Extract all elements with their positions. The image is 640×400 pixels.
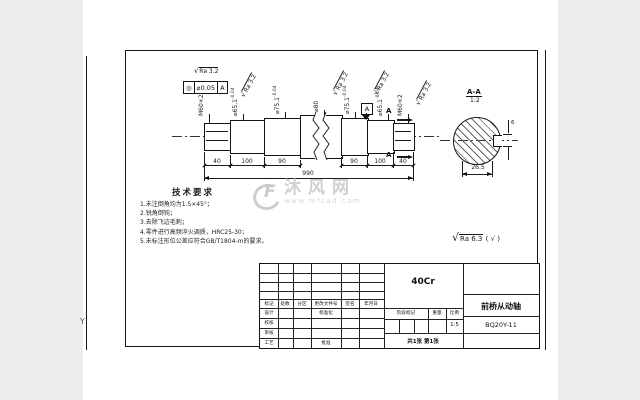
tb-col-genggai: 更改文件号 <box>315 301 338 307</box>
tb-divider <box>463 333 539 334</box>
drawing-outer-border-left <box>86 56 87 350</box>
dim-40-right: 40 <box>399 158 407 165</box>
dimension-line <box>508 147 509 160</box>
extension-line <box>355 112 356 118</box>
extension-line <box>492 161 493 177</box>
roughness-mark-top-left: √Ra 3.2 <box>194 66 218 75</box>
tb-standardization: 标准化 <box>319 310 333 316</box>
dim-overall-990: 990 <box>302 170 313 177</box>
tb-divider <box>463 294 539 295</box>
dim-arrow-icon <box>204 176 209 180</box>
tech-requirement-item: 5.未标注形位公差应符合GB/T1804-m的要求。 <box>140 237 300 246</box>
tb-scale-value: 1:5 <box>450 322 459 328</box>
break-line <box>312 112 330 160</box>
cad-drawing-page: Y M60×2 ⌀65.1-0.04 ⌀75.1-0.04 ⌀80 ⌀75.1-… <box>0 0 640 400</box>
roughness-value: Ra 3.2 <box>199 67 218 75</box>
tb-part-name: 前桥从动轴 <box>481 301 521 312</box>
tb-stage-mark: 阶段标记 <box>397 310 415 316</box>
extension-line <box>324 110 325 115</box>
keyway-line <box>206 140 228 141</box>
section-arrow-icon <box>408 118 413 122</box>
dimension-line <box>204 165 300 166</box>
watermark-site-url: www.mfcad.com <box>284 197 361 205</box>
dim-40-left: 40 <box>213 158 221 165</box>
tb-divider <box>260 282 384 283</box>
keyway-line <box>206 131 228 132</box>
dim-label-d80: ⌀80 <box>311 101 318 112</box>
datum-triangle-icon <box>362 115 370 120</box>
shaft-segment-d75-right <box>341 118 369 156</box>
tb-approve: 批准 <box>321 340 330 346</box>
section-view-scale: 1:2 <box>470 97 480 104</box>
tb-divider <box>384 333 463 334</box>
shaft-segment-thread-left <box>204 123 232 151</box>
datum-flag: A <box>361 103 373 115</box>
tb-col-chushu: 处数 <box>280 301 289 307</box>
shaft-segment-thread-right <box>393 123 415 151</box>
general-roughness-other: ( √ ) <box>486 235 500 243</box>
tb-divider <box>260 273 384 274</box>
dimension-line <box>508 120 509 133</box>
tb-divider <box>463 264 464 348</box>
tb-divider <box>428 308 429 333</box>
tb-divider <box>384 308 463 309</box>
concentricity-icon: ◎ <box>184 82 195 93</box>
tb-drawing-number: BQ20Y-11 <box>485 321 517 329</box>
tech-requirement-item: 3.去除飞边毛刺； <box>140 218 300 227</box>
general-roughness-note: √Ra 6.3 ( √ ) <box>452 231 500 244</box>
title-block: 标记 处数 分区 更改文件号 签名 年月日 设计 校核 审核 工艺 标准化 批准… <box>259 263 540 349</box>
keyway-line <box>395 131 411 132</box>
geometric-tolerance-frame: ◎ ⌀0.05 A <box>183 81 228 94</box>
extension-line <box>285 112 286 118</box>
dim-100-right: 100 <box>374 158 385 165</box>
tb-divider <box>414 319 415 333</box>
tb-divider <box>260 338 384 339</box>
tb-divider <box>384 264 385 348</box>
keyway-width-dim: 6 <box>511 120 515 126</box>
dim-90-right: 90 <box>350 158 358 165</box>
extension-line <box>243 114 244 120</box>
tb-divider <box>278 264 279 348</box>
tb-divider <box>260 318 384 319</box>
tb-divider <box>260 291 384 292</box>
tb-col-qianming: 签名 <box>345 301 354 307</box>
general-roughness-value: Ra 6.3 <box>459 234 483 243</box>
dim-label-thread-right: M60×2 <box>395 94 402 116</box>
tb-material: 40Cr <box>411 277 435 287</box>
keyway-notch <box>493 135 502 147</box>
logo-letter: F <box>264 182 276 202</box>
tolerance-datum: A <box>218 82 226 93</box>
dim-100-left: 100 <box>241 158 252 165</box>
tb-divider <box>446 308 447 333</box>
tb-divider <box>260 328 384 329</box>
shaft-segment-d75-left <box>264 118 302 156</box>
tb-divider <box>359 264 360 348</box>
dim-90-left: 90 <box>278 158 286 165</box>
shaft-segment-d65-right <box>367 120 395 154</box>
dimension-line <box>341 165 413 166</box>
tech-requirement-item: 2.锐角倒钝； <box>140 209 300 218</box>
dim-arrow-icon <box>487 172 492 176</box>
tb-sheet-info: 共1张 第1张 <box>407 337 439 345</box>
extension-line <box>209 114 210 123</box>
roughness-check-icon: √ <box>452 231 459 244</box>
tb-divider <box>384 319 463 320</box>
watermark-site-name: 沐风网 <box>284 180 361 197</box>
tb-divider <box>311 264 312 348</box>
keyway-line <box>395 140 411 141</box>
tb-col-biaoji: 标记 <box>264 301 273 307</box>
tb-divider <box>399 319 400 333</box>
extension-line <box>503 134 512 135</box>
drawing-outer-border-right <box>545 50 546 350</box>
centering-mark: Y <box>80 317 85 326</box>
tb-row-process: 工艺 <box>264 340 273 346</box>
section-arrow-stem <box>397 119 408 121</box>
dim-label-d75-left: ⌀75.1-0.04 <box>272 85 279 114</box>
tolerance-value: ⌀0.05 <box>195 82 218 93</box>
tb-col-fenqu: 分区 <box>297 301 306 307</box>
tb-divider <box>293 264 294 348</box>
tb-divider <box>463 316 539 317</box>
section-letter-top: A <box>386 107 391 115</box>
dim-label-thread-left: M60×2 <box>196 94 203 116</box>
dim-arrow-icon <box>408 176 413 180</box>
tb-divider <box>260 308 384 309</box>
tb-weight: 重量 <box>432 310 441 316</box>
tb-divider <box>341 264 342 348</box>
tb-col-riqi: 年月日 <box>364 301 378 307</box>
dim-label-d65-left: ⌀65.1-0.04 <box>230 87 237 116</box>
dim-arrow-icon <box>462 172 467 176</box>
section-width-dim: 26.5 <box>471 164 484 171</box>
section-letter-bottom: A <box>386 151 391 159</box>
tb-row-audit: 审核 <box>264 330 273 336</box>
watermark: F 沐风网 www.mfcad.com <box>252 180 361 210</box>
tb-row-check: 校核 <box>264 320 273 326</box>
tb-scale: 比例 <box>450 310 459 316</box>
tech-requirement-item: 4.零件进行高频淬火调质，HRC25-30； <box>140 228 300 237</box>
mfcad-logo-icon: F <box>252 180 284 210</box>
dim-label-d75-right: ⌀75.1-0.04 <box>342 85 349 114</box>
tb-row-design: 设计 <box>264 310 273 316</box>
shaft-segment-d65-left <box>230 120 266 154</box>
section-view-title: A-A <box>466 88 482 97</box>
